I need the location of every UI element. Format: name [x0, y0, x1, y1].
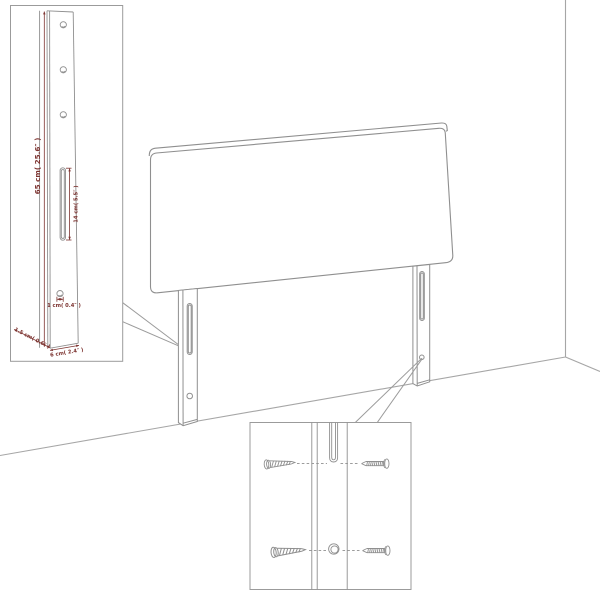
inset-screw-detail — [250, 423, 411, 590]
inset-leg-dimensions: 65 cm( 25.6″ ) 14 cm( 5.5″ ) 1 cm( 0.4″ … — [11, 6, 123, 362]
headboard-front-face — [151, 128, 453, 293]
callout-line — [123, 322, 179, 346]
left-leg — [178, 289, 197, 426]
callout-line — [123, 303, 179, 345]
dim-slot-label: 14 cm( 5.5″ ) — [74, 185, 80, 222]
callout-wedge-left — [123, 303, 179, 346]
callout-line — [377, 359, 422, 423]
headboard-panel — [149, 123, 453, 293]
screw-detail-box — [250, 423, 411, 590]
callout-wedge-right — [355, 358, 422, 422]
assembly-diagram-page: 65 cm( 25.6″ ) 14 cm( 5.5″ ) 1 cm( 0.4″ … — [0, 0, 600, 600]
dim-hole-label: 1 cm( 0.4″ ) — [47, 303, 81, 309]
callout-line — [355, 358, 421, 422]
floor-edge-right-line — [566, 357, 600, 372]
assembly-diagram: 65 cm( 25.6″ ) 14 cm( 5.5″ ) 1 cm( 0.4″ … — [0, 0, 600, 600]
post-side-edge — [50, 11, 51, 348]
dim-height-label: 65 cm( 25.6″ ) — [33, 138, 42, 195]
